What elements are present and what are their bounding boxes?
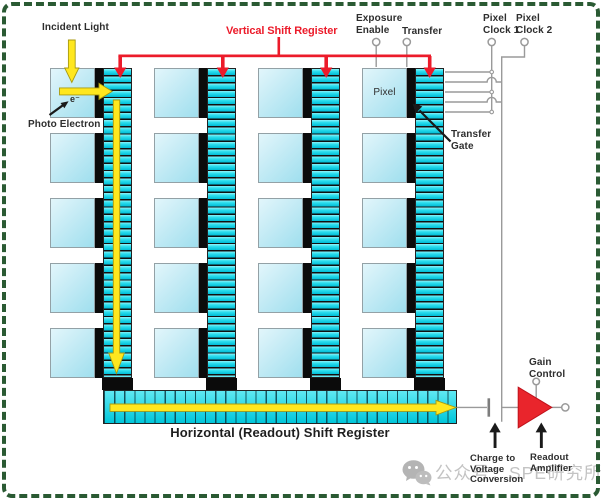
pixel-label: Pixel: [362, 87, 407, 99]
vsr-bottom-gate: [414, 378, 445, 390]
transfer-gate-strip: [407, 328, 415, 378]
pixel-clock-1-label: Pixel Clock 1: [483, 13, 519, 37]
transfer-gate-strip: [95, 263, 103, 313]
charge-conversion-pointer-icon: [489, 423, 500, 433]
pixel-cell: [50, 328, 95, 378]
pixel-clock2-terminal: [521, 38, 528, 45]
pixel-cell: [258, 68, 303, 118]
transfer-gate-strip: [303, 328, 311, 378]
gain-control-label: Gain Control: [529, 357, 565, 381]
horizontal-shift-register-label: Horizontal (Readout) Shift Register: [103, 427, 457, 439]
readout-amp-pointer-icon: [536, 423, 547, 433]
transfer-gate-strip: [95, 133, 103, 183]
pixel-cell: [362, 133, 407, 183]
transfer-gate-strip: [407, 68, 415, 118]
charge-to-voltage-label: Charge to Voltage Conversion: [470, 454, 523, 486]
vsr-bottom-gate: [102, 378, 133, 390]
pixel-cell: [258, 198, 303, 248]
wechat-icon: [402, 459, 432, 486]
pixel-clock-2-label: Pixel Clock 2: [516, 13, 552, 37]
vertical-shift-register-label: Vertical Shift Register: [226, 25, 337, 37]
transfer-gate-strip: [303, 68, 311, 118]
ccd-architecture-diagram: 公众号：SPE研究所: [0, 0, 602, 500]
pixel-cell: [50, 263, 95, 313]
transfer-gate-strip: [303, 133, 311, 183]
vsr-bottom-gate: [206, 378, 237, 390]
vertical-shift-register-column: [207, 68, 236, 378]
exposure-enable-terminal: [373, 38, 380, 45]
transfer-gate-strip: [303, 198, 311, 248]
pixel-cell: [50, 198, 95, 248]
pixel-cell: [154, 198, 199, 248]
pixel-cell: [362, 328, 407, 378]
pixel-clock1-terminal: [488, 38, 495, 45]
transfer-gate-strip: [199, 68, 207, 118]
incident-light-label: Incident Light: [42, 22, 109, 34]
transfer-gate-strip: [199, 328, 207, 378]
pixel-cell: [258, 263, 303, 313]
vertical-shift-register-column: [311, 68, 340, 378]
readout-amplifier-label: Readout Amplifier: [530, 453, 572, 474]
pixel-cell: [362, 263, 407, 313]
exposure-enable-label: Exposure Enable: [356, 13, 402, 37]
pixel-cell: [362, 198, 407, 248]
pixel-cell: [154, 68, 199, 118]
vertical-shift-register-column: [103, 68, 132, 378]
transfer-gate-strip: [95, 68, 103, 118]
pixel-cell: [50, 133, 95, 183]
transfer-gate-strip: [199, 263, 207, 313]
transfer-terminal: [403, 38, 410, 45]
transfer-gate-label: Transfer Gate: [451, 129, 491, 153]
transfer-gate-strip: [303, 263, 311, 313]
transfer-gate-strip: [199, 198, 207, 248]
transfer-gate-strip: [95, 328, 103, 378]
pixel-cell: [258, 133, 303, 183]
vsr-bottom-gate: [310, 378, 341, 390]
transfer-gate-strip: [407, 263, 415, 313]
pixel-cell: [258, 328, 303, 378]
transfer-gate-strip: [95, 198, 103, 248]
photo-electron-label: Photo Electron: [26, 119, 103, 131]
transfer-label: Transfer: [402, 26, 442, 38]
pixel-cell: [154, 263, 199, 313]
pixel-cell: [154, 133, 199, 183]
output-terminal: [562, 404, 569, 411]
transfer-gate-strip: [199, 133, 207, 183]
transfer-gate-strip: [407, 198, 415, 248]
horizontal-shift-register: [103, 390, 457, 424]
transfer-gate-strip: [407, 133, 415, 183]
pixel-cell: [154, 328, 199, 378]
electron-symbol: e⁻: [70, 93, 80, 105]
vertical-shift-register-column: [415, 68, 444, 378]
readout-amplifier-icon: [518, 387, 552, 428]
